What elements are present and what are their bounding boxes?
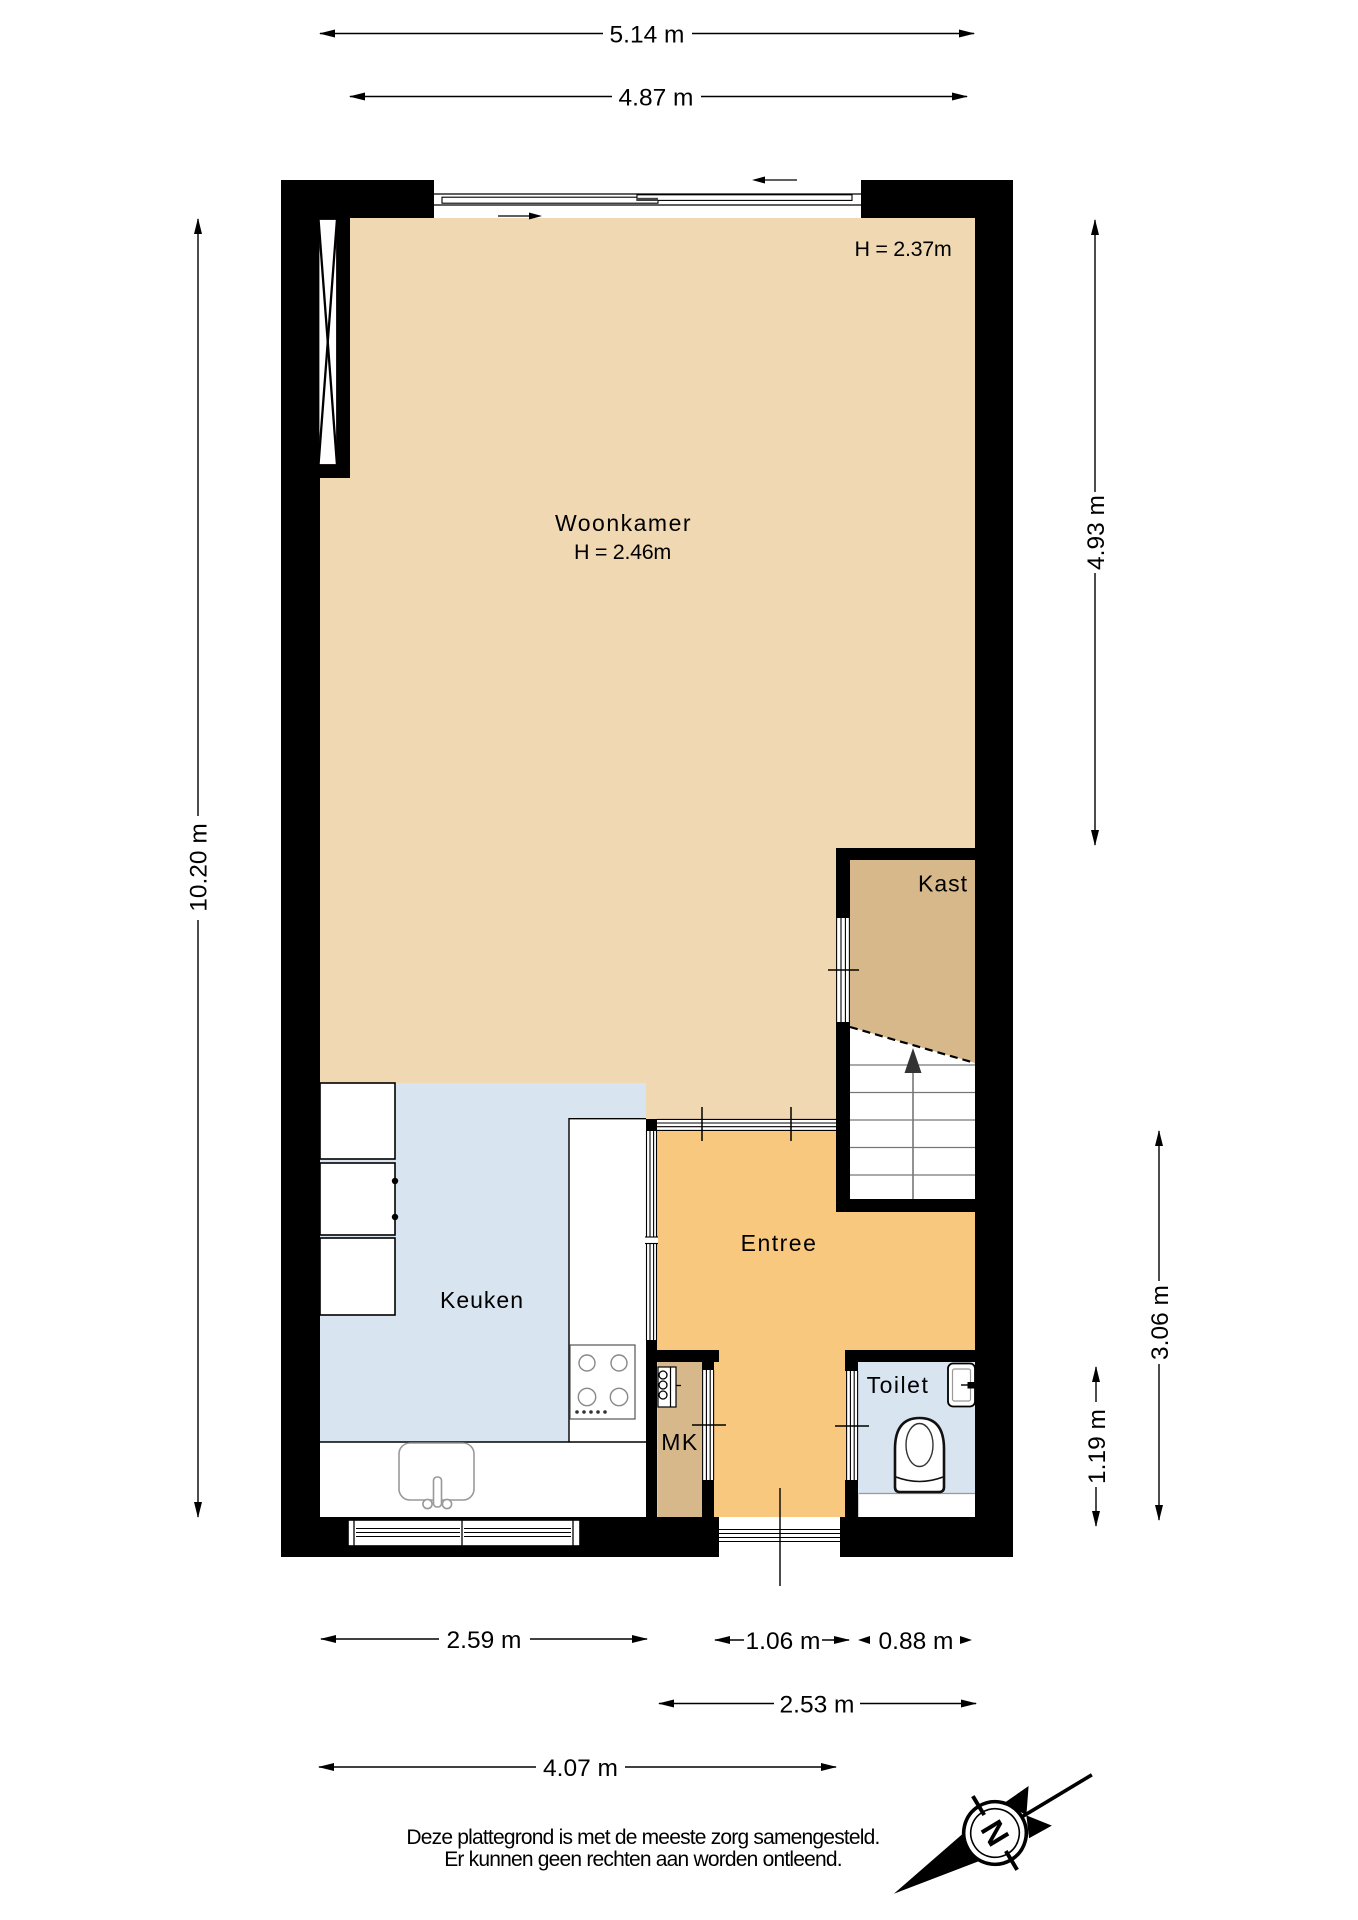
svg-text:Er kunnen geen rechten aan wor: Er kunnen geen rechten aan worden ontlee…: [444, 1848, 842, 1871]
svg-text:4.87 m: 4.87 m: [619, 85, 694, 112]
svg-text:4.07 m: 4.07 m: [543, 1755, 618, 1782]
svg-text:H = 2.37m: H = 2.37m: [854, 237, 951, 261]
svg-text:MK: MK: [661, 1429, 699, 1455]
svg-text:2.53 m: 2.53 m: [780, 1692, 855, 1719]
svg-text:0.88 m: 0.88 m: [879, 1628, 954, 1655]
svg-text:5.14 m: 5.14 m: [610, 22, 685, 49]
svg-text:Keuken: Keuken: [440, 1287, 524, 1313]
svg-text:Entree: Entree: [741, 1230, 818, 1256]
svg-text:3.06 m: 3.06 m: [1147, 1285, 1174, 1360]
svg-text:Kast: Kast: [918, 871, 968, 897]
svg-text:Woonkamer: Woonkamer: [555, 510, 692, 536]
svg-text:H = 2.46m: H = 2.46m: [574, 540, 671, 564]
svg-text:Toilet: Toilet: [867, 1372, 930, 1398]
svg-text:Deze plattegrond is met de mee: Deze plattegrond is met de meeste zorg s…: [406, 1826, 879, 1849]
svg-text:10.20 m: 10.20 m: [186, 823, 213, 912]
svg-text:1.19 m: 1.19 m: [1084, 1409, 1111, 1484]
svg-text:2.59 m: 2.59 m: [447, 1627, 522, 1654]
svg-text:1.06 m: 1.06 m: [746, 1628, 821, 1655]
svg-text:4.93 m: 4.93 m: [1083, 495, 1110, 570]
